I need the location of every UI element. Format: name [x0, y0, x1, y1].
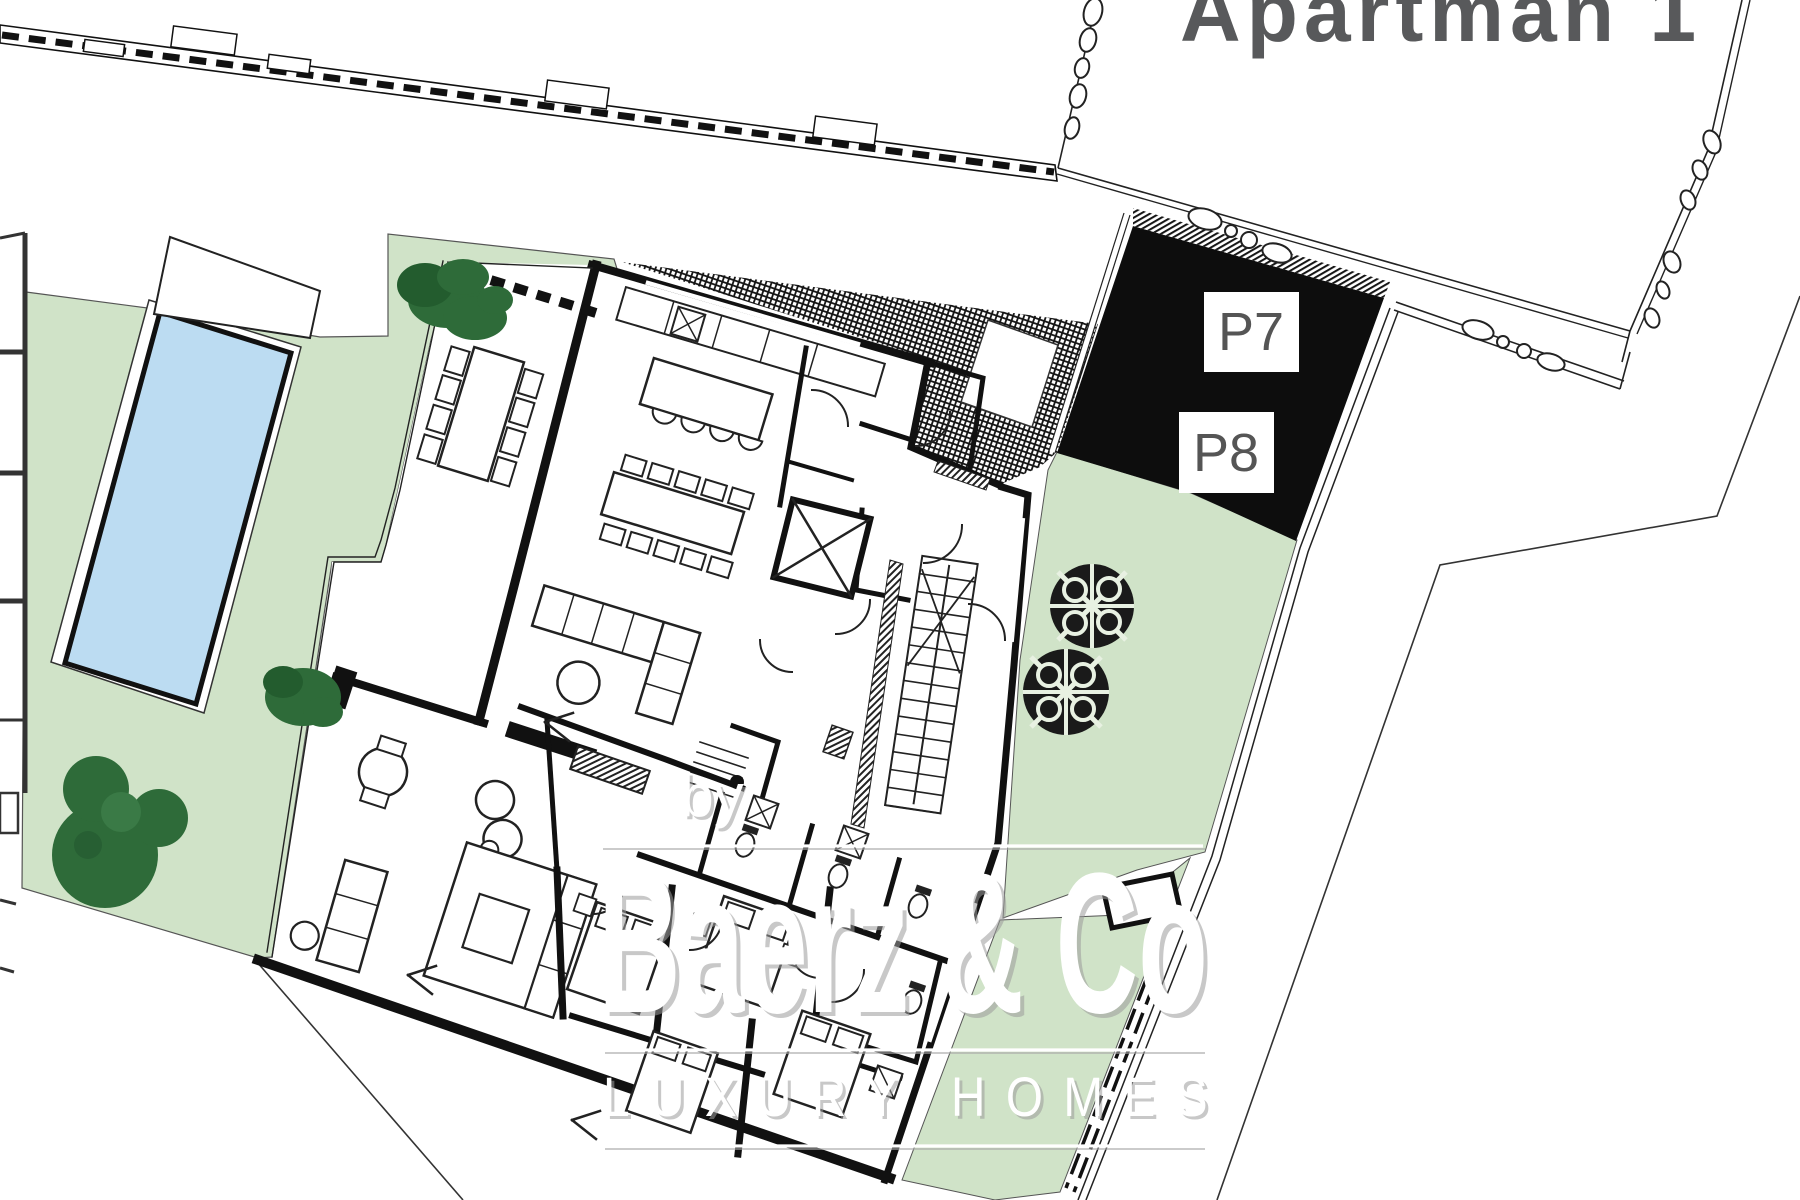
svg-text:by: by: [680, 762, 743, 829]
svg-text:Baerz & Co: Baerz & Co: [598, 832, 1208, 1055]
svg-text:LUXURY HOMES: LUXURY HOMES: [603, 1065, 1228, 1128]
svg-text:P7: P7: [1218, 302, 1284, 362]
svg-text:Apartman 1: Apartman 1: [1180, 0, 1702, 59]
svg-text:P8: P8: [1193, 423, 1259, 483]
